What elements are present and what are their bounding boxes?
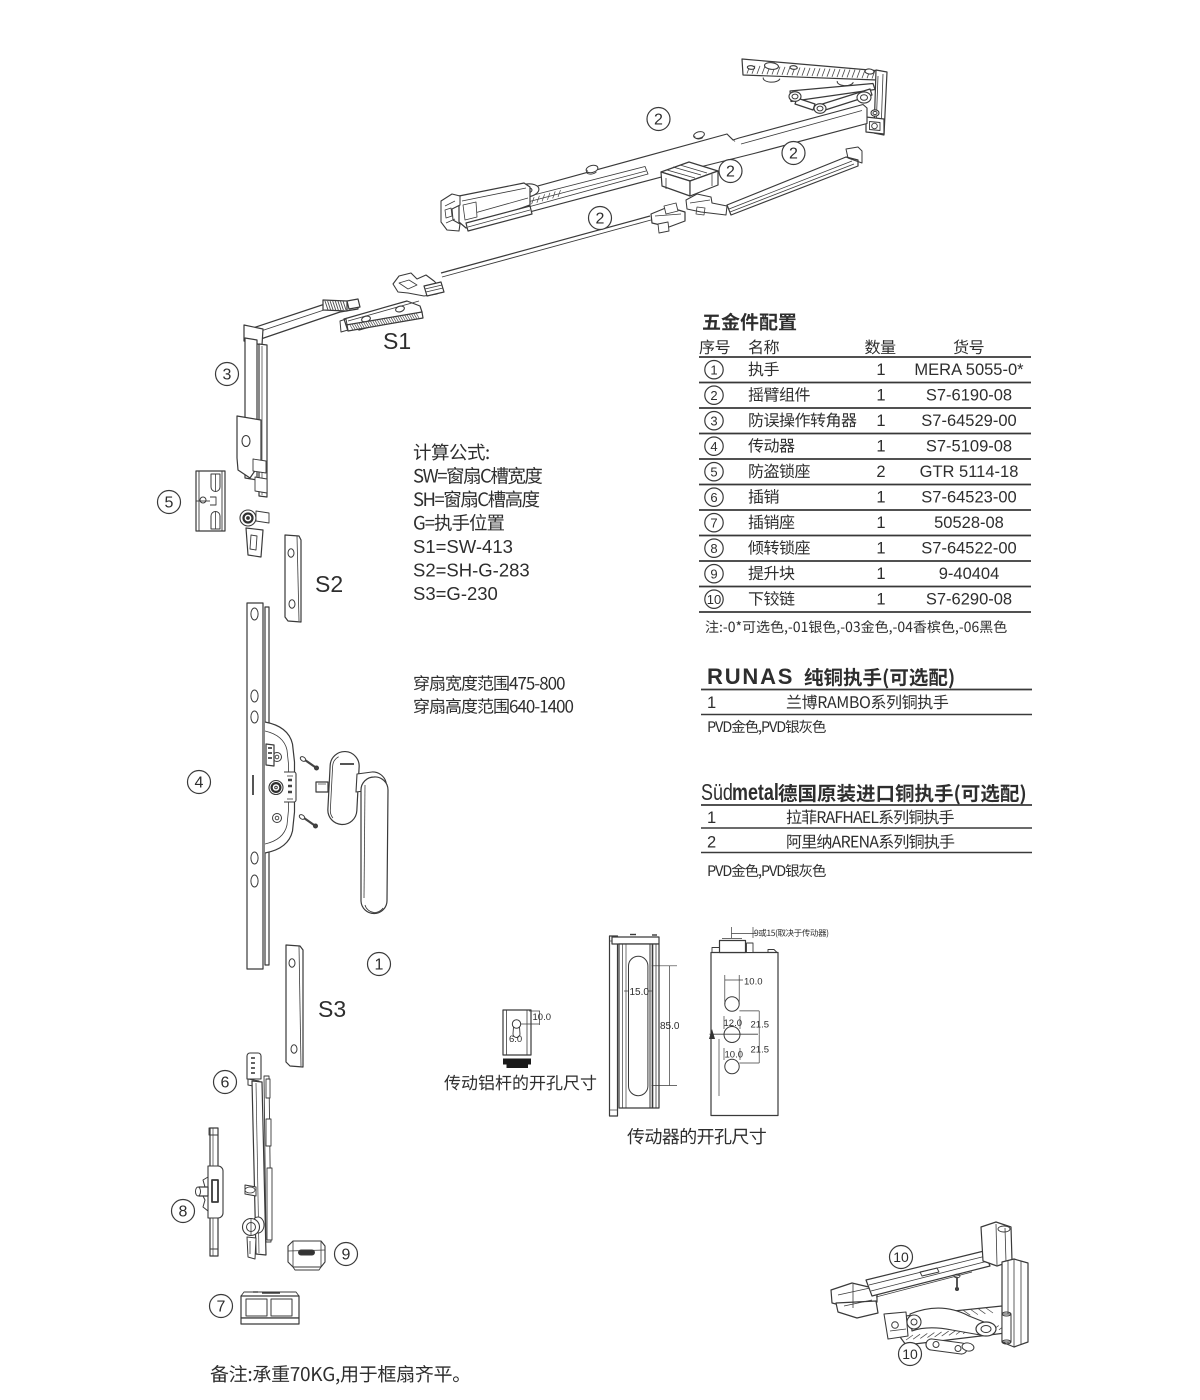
svg-text:S7-6290-08: S7-6290-08 xyxy=(926,591,1012,609)
svg-text:3: 3 xyxy=(710,413,717,428)
svg-text:10.0: 10.0 xyxy=(725,1050,744,1061)
svg-text:1: 1 xyxy=(876,438,885,456)
svg-text:1: 1 xyxy=(375,957,384,974)
svg-text:S2=SH-G-283: S2=SH-G-283 xyxy=(413,560,530,581)
svg-text:6.0: 6.0 xyxy=(509,1034,522,1045)
svg-text:4: 4 xyxy=(710,439,717,454)
svg-text:15.0: 15.0 xyxy=(630,987,650,998)
svg-text:RUNAS: RUNAS xyxy=(707,664,794,689)
svg-text:10: 10 xyxy=(707,592,721,607)
svg-text:2: 2 xyxy=(654,112,663,129)
svg-text:1: 1 xyxy=(876,514,885,532)
svg-text:S7-64523-00: S7-64523-00 xyxy=(921,489,1016,507)
svg-text:1: 1 xyxy=(876,565,885,583)
svg-text:Süd: Süd xyxy=(701,780,733,806)
svg-text:9: 9 xyxy=(710,566,717,581)
svg-text:8: 8 xyxy=(710,541,717,556)
svg-text:1: 1 xyxy=(876,387,885,405)
svg-text:S7-64522-00: S7-64522-00 xyxy=(921,540,1016,558)
svg-text:1: 1 xyxy=(876,591,885,609)
svg-text:21.5: 21.5 xyxy=(751,1020,770,1031)
svg-text:5: 5 xyxy=(165,495,174,512)
svg-text:S3: S3 xyxy=(318,996,346,1022)
svg-text:10.0: 10.0 xyxy=(744,977,763,988)
svg-text:85.0: 85.0 xyxy=(660,1021,680,1032)
svg-text:9: 9 xyxy=(342,1247,351,1264)
svg-text:S1: S1 xyxy=(383,328,411,354)
svg-text:50528-08: 50528-08 xyxy=(934,514,1004,532)
svg-text:3: 3 xyxy=(223,367,232,384)
svg-text:1: 1 xyxy=(876,361,885,379)
svg-text:2: 2 xyxy=(707,834,716,852)
svg-text:metal: metal xyxy=(732,780,779,806)
svg-text:2: 2 xyxy=(789,146,798,163)
svg-text:10: 10 xyxy=(893,1249,909,1265)
svg-text:7: 7 xyxy=(217,1299,226,1316)
svg-text:2: 2 xyxy=(876,463,885,481)
svg-text:8: 8 xyxy=(179,1204,188,1221)
svg-text:GTR 5114-18: GTR 5114-18 xyxy=(920,463,1019,481)
svg-text:5: 5 xyxy=(710,464,717,479)
svg-text:10: 10 xyxy=(902,1346,918,1362)
svg-text:21.5: 21.5 xyxy=(751,1045,770,1056)
svg-text:7: 7 xyxy=(710,515,717,530)
svg-text:S2: S2 xyxy=(315,571,343,597)
svg-text:1: 1 xyxy=(876,412,885,430)
svg-text:1: 1 xyxy=(876,489,885,507)
svg-text:6: 6 xyxy=(710,490,717,505)
svg-text:2: 2 xyxy=(596,211,605,228)
svg-text:1: 1 xyxy=(710,362,717,377)
svg-text:1: 1 xyxy=(707,694,716,712)
svg-text:2: 2 xyxy=(710,388,717,403)
svg-text:1: 1 xyxy=(707,809,716,827)
svg-text:S3=G-230: S3=G-230 xyxy=(413,583,498,604)
svg-text:S7-64529-00: S7-64529-00 xyxy=(921,412,1016,430)
svg-text:1: 1 xyxy=(876,540,885,558)
svg-text:6: 6 xyxy=(221,1075,230,1092)
svg-text:S7-6190-08: S7-6190-08 xyxy=(926,387,1012,405)
svg-text:MERA 5055-0*: MERA 5055-0* xyxy=(914,361,1024,379)
svg-text:12.0: 12.0 xyxy=(724,1018,743,1029)
svg-text:9-40404: 9-40404 xyxy=(939,565,1000,583)
svg-text:10.0: 10.0 xyxy=(533,1012,552,1023)
svg-text:4: 4 xyxy=(195,775,204,792)
svg-text:2: 2 xyxy=(726,164,735,181)
svg-text:S1=SW-413: S1=SW-413 xyxy=(413,536,513,557)
svg-text:S7-5109-08: S7-5109-08 xyxy=(926,438,1012,456)
